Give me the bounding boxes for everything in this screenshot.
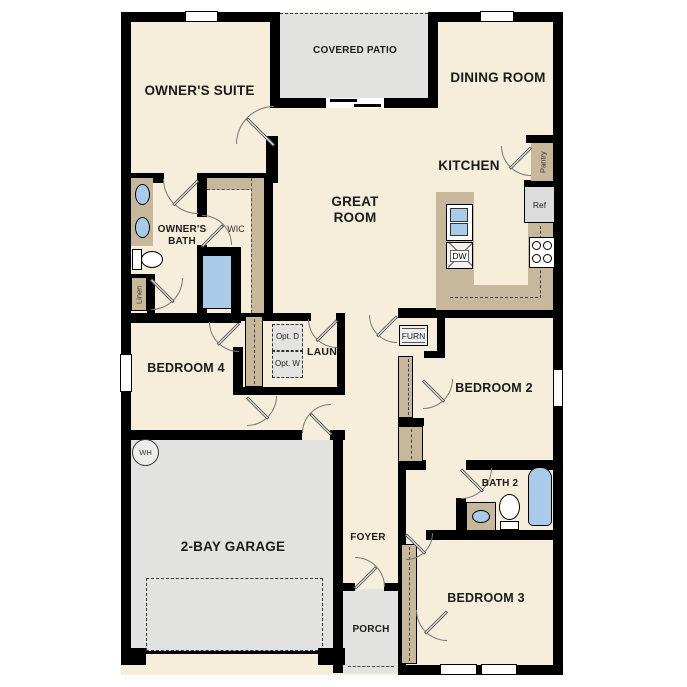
toilet-bowl-icon [141,251,163,268]
room-label-foyer: FOYER [346,531,390,545]
linen-door [151,278,183,310]
dishwasher-icon: DW [446,242,473,269]
room-label-wic: WIC [220,222,252,235]
dw-label: DW [450,250,468,262]
closet-rod-dashed [409,547,410,661]
room-label-porch: PORCH [348,623,394,637]
furnace-icon: FURN [399,325,428,346]
laundry-door [308,319,337,348]
slider-panel [354,104,381,107]
wic-shelf-right [251,178,264,313]
owners-suite-door [236,106,274,144]
garage-entry-door [302,404,331,433]
linen-label: Linen [133,280,145,309]
wall [197,183,207,217]
wall [456,498,466,532]
bath2-vanity [466,502,496,531]
room-label-owners-suite: OWNER'S SUITE [142,72,257,110]
closet-rod-dashed [411,429,412,459]
closet-rod-dashed [408,359,409,415]
room-label-bedroom2: BEDROOM 2 [446,380,542,397]
kitchen-sink-icon [446,204,473,241]
pantry-label: Pantry [536,146,550,179]
room-label-dining-room: DINING ROOM [443,60,553,96]
bedroom3-closet-door [416,610,447,641]
burner [543,241,552,250]
window [480,11,514,22]
wall [270,12,280,108]
hall-door [247,396,277,426]
room-label-bedroom4: BEDROOM 4 [134,360,238,377]
owners-bath-door [163,179,198,214]
hall-closet [245,316,263,387]
wall [553,12,563,675]
room-label-garage: 2-BAY GARAGE [178,528,288,566]
floor-plan: DW Ref Opt. D Opt. W FURN WH OWNER'S SUI… [0,0,687,687]
bedroom3-closet [401,544,417,664]
room-label-kitchen: KITCHEN [430,157,508,175]
refrigerator-icon: Ref [524,186,555,223]
wall [231,247,241,313]
garage-door-line [146,651,318,654]
slider-panel [330,99,357,102]
window [440,664,477,675]
burner [543,254,552,263]
water-heater-icon: WH [132,439,159,466]
sink-icon [472,510,490,523]
opt-dryer-box: Opt. D [272,324,303,351]
room-label-owners-bath: OWNER'S BATH [150,221,214,251]
furnace-closet-door [369,315,397,343]
porch-edge-dashed [348,666,394,667]
opt-washer-box: Opt. W [272,351,303,378]
furn-label: FURN [402,331,426,341]
room-label-great-room: GREAT ROOM [312,192,398,228]
sink-icon [135,184,150,205]
wall [121,648,146,665]
shower-icon [202,255,232,309]
closet-rod-dashed [254,319,255,384]
room-label-bath2: BATH 2 [481,470,519,498]
wall [333,430,343,673]
bedroom4-door [209,322,239,352]
burner [532,254,541,263]
range-icon [529,237,555,268]
room-label-covered-patio: COVERED PATIO [303,36,407,66]
wall [526,135,563,143]
garage-door-dashed-outline [146,578,323,651]
wall [382,98,438,108]
bedroom2-closet [398,356,413,418]
sink-basin [450,208,468,222]
counter-edge-dashed [450,297,538,298]
window [185,11,218,22]
window [120,354,132,392]
room-label-laundry: LAUN [301,345,343,360]
front-door [355,557,385,587]
sink-basin [450,223,468,236]
wall [263,173,273,313]
wall [263,313,311,321]
wall [428,12,438,108]
burner [532,241,541,250]
wall [240,387,345,395]
wall [426,530,553,540]
window [553,369,563,407]
bathtub-icon [528,467,552,526]
wall [398,418,424,426]
wall [121,12,131,665]
wall [424,351,445,358]
sink-icon [135,217,150,238]
hall-linen-closet [398,426,423,462]
toilet-tank-icon [500,521,519,530]
room-label-bedroom3: BEDROOM 3 [434,590,538,607]
bedroom3-door [406,533,433,560]
wall [270,98,330,108]
window [481,664,517,675]
